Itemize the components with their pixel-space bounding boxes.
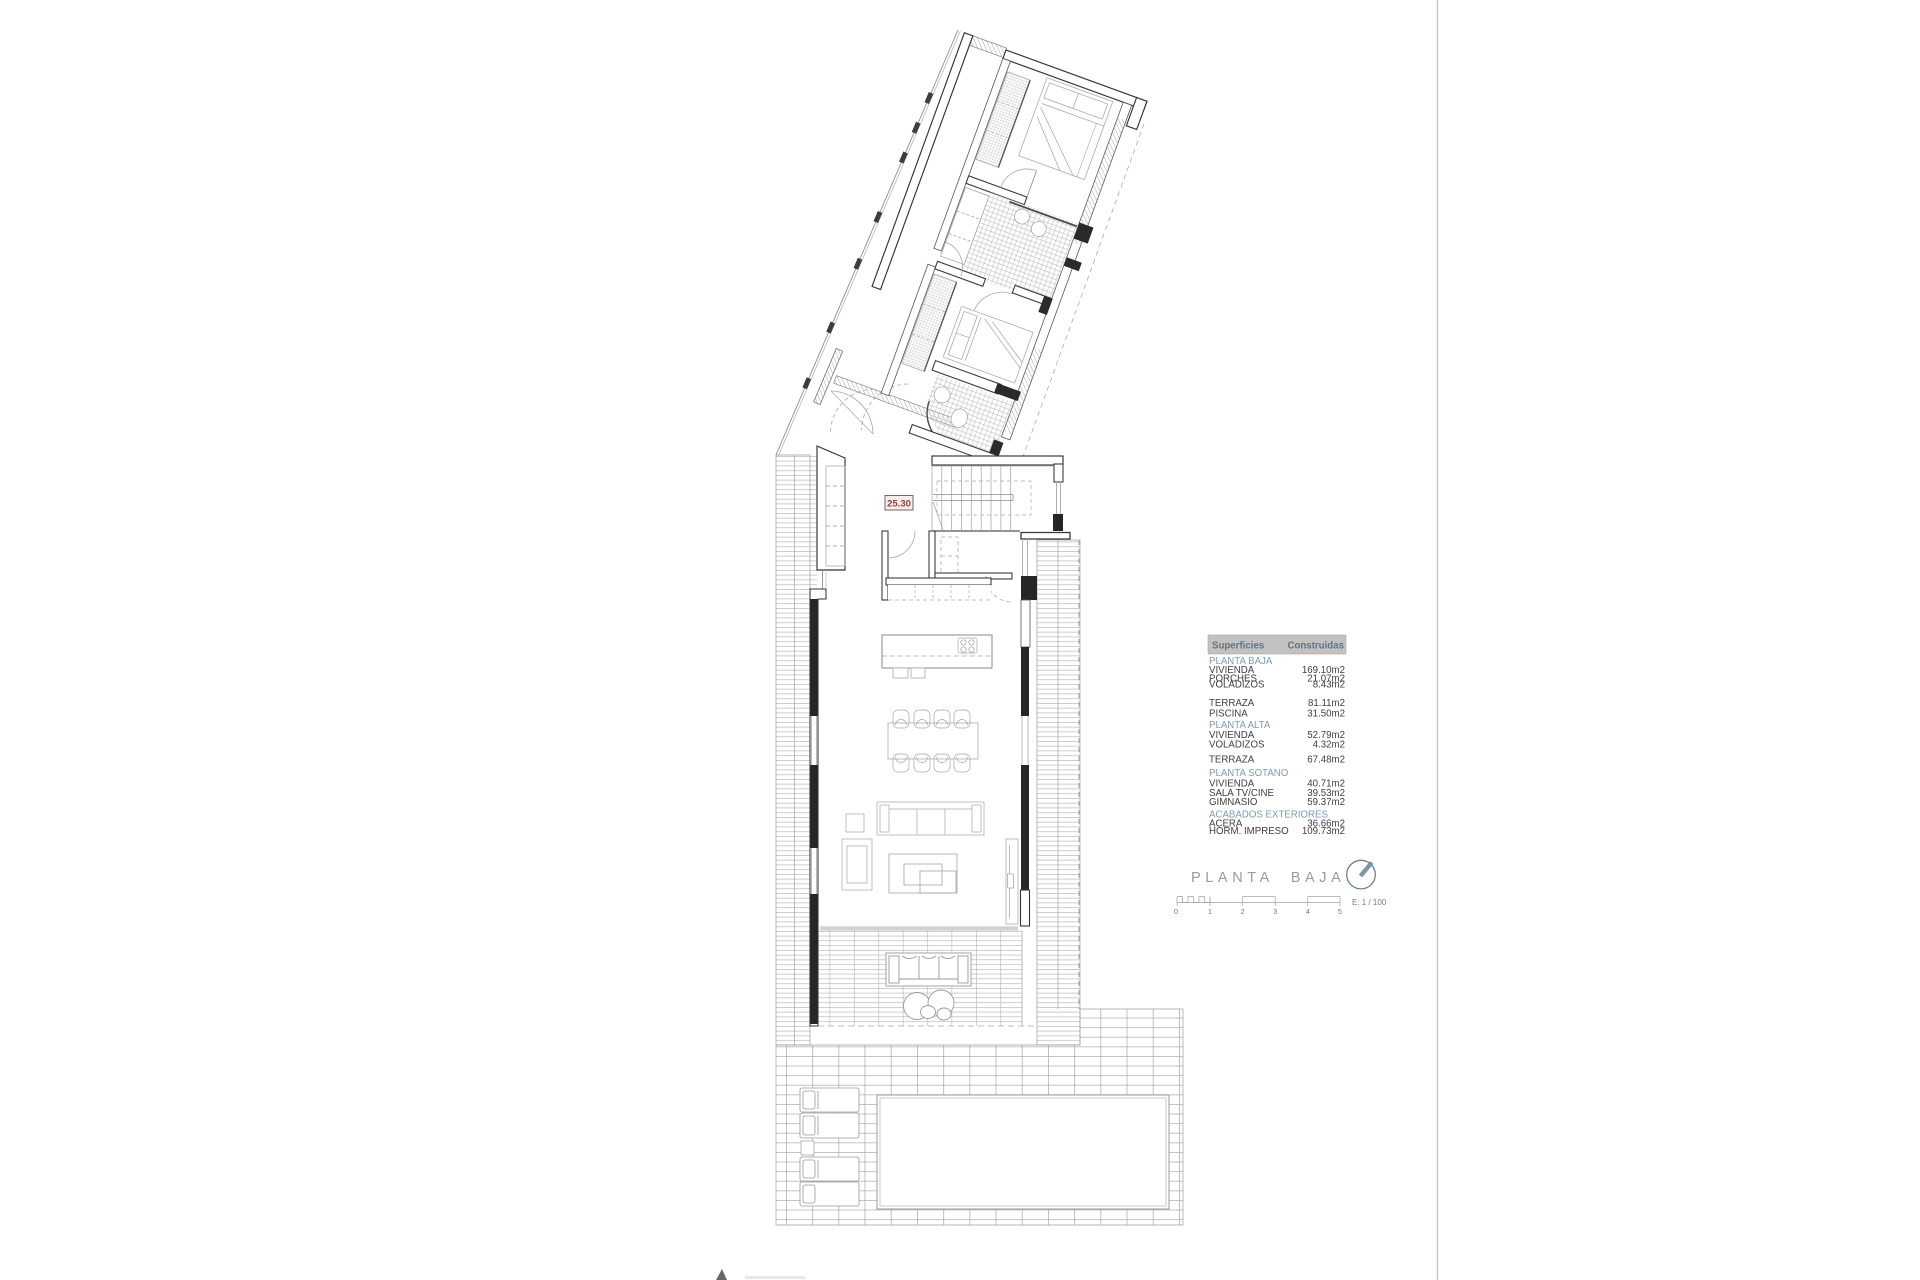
svg-text:Superficies: Superficies	[1212, 641, 1264, 652]
svg-text:4: 4	[1306, 907, 1310, 916]
svg-text:PISCINA: PISCINA	[1209, 709, 1248, 720]
svg-text:3: 3	[1273, 907, 1277, 916]
svg-text:VOLADIZOS: VOLADIZOS	[1209, 740, 1265, 751]
svg-text:25.30: 25.30	[887, 499, 911, 510]
svg-text:2: 2	[1241, 907, 1245, 916]
svg-text:VOLADIZOS: VOLADIZOS	[1209, 680, 1265, 691]
svg-text:31.50m2: 31.50m2	[1307, 709, 1345, 720]
svg-text:TERRAZA: TERRAZA	[1209, 698, 1255, 709]
svg-text:Construidas: Construidas	[1287, 641, 1344, 652]
svg-text:TERRAZA: TERRAZA	[1209, 755, 1255, 766]
svg-text:PLANTA SOTANO: PLANTA SOTANO	[1209, 768, 1289, 779]
svg-text:59.37m2: 59.37m2	[1307, 797, 1345, 808]
svg-text:67.48m2: 67.48m2	[1307, 755, 1345, 766]
svg-text:109.73m2: 109.73m2	[1302, 826, 1345, 837]
svg-text:HORM. IMPRESO: HORM. IMPRESO	[1209, 826, 1289, 837]
svg-text:81.11m2: 81.11m2	[1308, 698, 1345, 709]
svg-text:4.32m2: 4.32m2	[1313, 740, 1345, 751]
svg-text:PLANTA BAJA: PLANTA BAJA	[1191, 870, 1345, 886]
svg-text:1: 1	[1208, 907, 1212, 916]
svg-text:0: 0	[1174, 907, 1178, 916]
svg-text:5: 5	[1338, 907, 1342, 916]
svg-text:GIMNASIO: GIMNASIO	[1209, 797, 1258, 808]
svg-text:E: 1 / 100: E: 1 / 100	[1352, 898, 1387, 907]
svg-text:8.43m2: 8.43m2	[1313, 680, 1345, 691]
